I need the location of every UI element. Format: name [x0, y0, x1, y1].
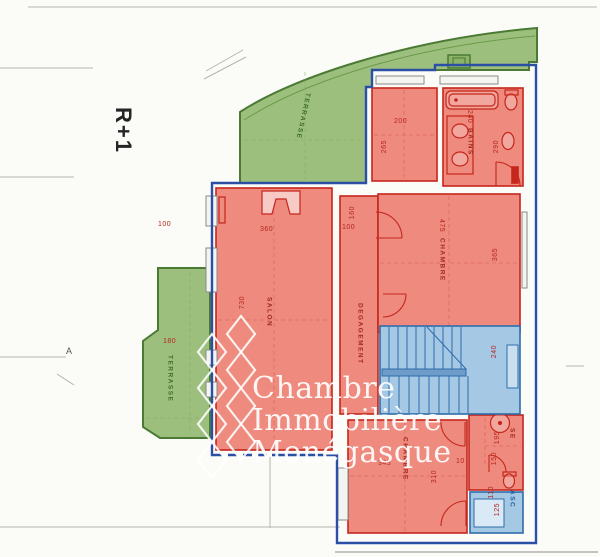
- watermark-text-line3: Monégasque: [252, 438, 452, 468]
- dim-dressing-width: 200: [394, 118, 407, 125]
- dim-chambre1-depth: 365: [492, 248, 499, 261]
- glazing-strip: [522, 212, 527, 288]
- dim-bains-depth: 290: [493, 140, 500, 153]
- terrace-left-label: TERRASSE: [166, 355, 173, 402]
- elevator-label: ASC: [508, 490, 515, 508]
- watermark-text-line1: Chambre: [252, 374, 395, 404]
- bains-label: BAINS: [466, 128, 473, 156]
- degagement-label: DEGAGEMENT: [356, 303, 363, 365]
- dim-asc-width: 110: [488, 486, 495, 499]
- floor-plan-canvas: [0, 0, 600, 557]
- dim-asc-depth: 125: [494, 503, 501, 516]
- dim-dressing-depth: 265: [381, 140, 388, 153]
- dim-bains-width: 240: [466, 110, 473, 123]
- floor-level-label: R+1: [112, 107, 134, 154]
- staircase: [380, 326, 520, 414]
- dim-chambre2-recess: 10: [456, 458, 465, 465]
- dim-hall-depth: 240: [491, 345, 498, 358]
- dim-terrace-width: 180: [163, 338, 176, 345]
- salle-eau-label: SE: [508, 428, 515, 440]
- dim-vestibule-b: 100: [342, 224, 355, 231]
- dim-terrace-return: 100: [158, 221, 171, 228]
- floor-plan-page: R+1 A TERRASSE TERRASSE 100 180 SALON 36…: [0, 0, 600, 557]
- dim-salon-width: 360: [260, 226, 273, 233]
- bidet-icon: [502, 133, 514, 150]
- chambre1-label: CHAMBRE: [438, 238, 445, 282]
- dim-se-depth: 195: [494, 431, 501, 444]
- dressing-shape: [372, 88, 437, 181]
- wc-icon: [504, 474, 515, 488]
- dim-vestibule-a: 160: [349, 206, 356, 219]
- dim-salon-depth: 730: [239, 296, 246, 309]
- dim-chambre1-width: 475: [438, 219, 445, 232]
- stair-shaft-wall: [507, 345, 518, 388]
- door-frame: [338, 468, 348, 520]
- section-marker: A: [66, 347, 72, 356]
- dim-se-width: 150: [491, 452, 498, 465]
- dim-chambre2-depth: 310: [431, 470, 438, 483]
- salon-label: SALON: [265, 297, 272, 327]
- watermark-text-line2: Immobilière: [252, 406, 442, 436]
- toilet-icon: [505, 94, 517, 110]
